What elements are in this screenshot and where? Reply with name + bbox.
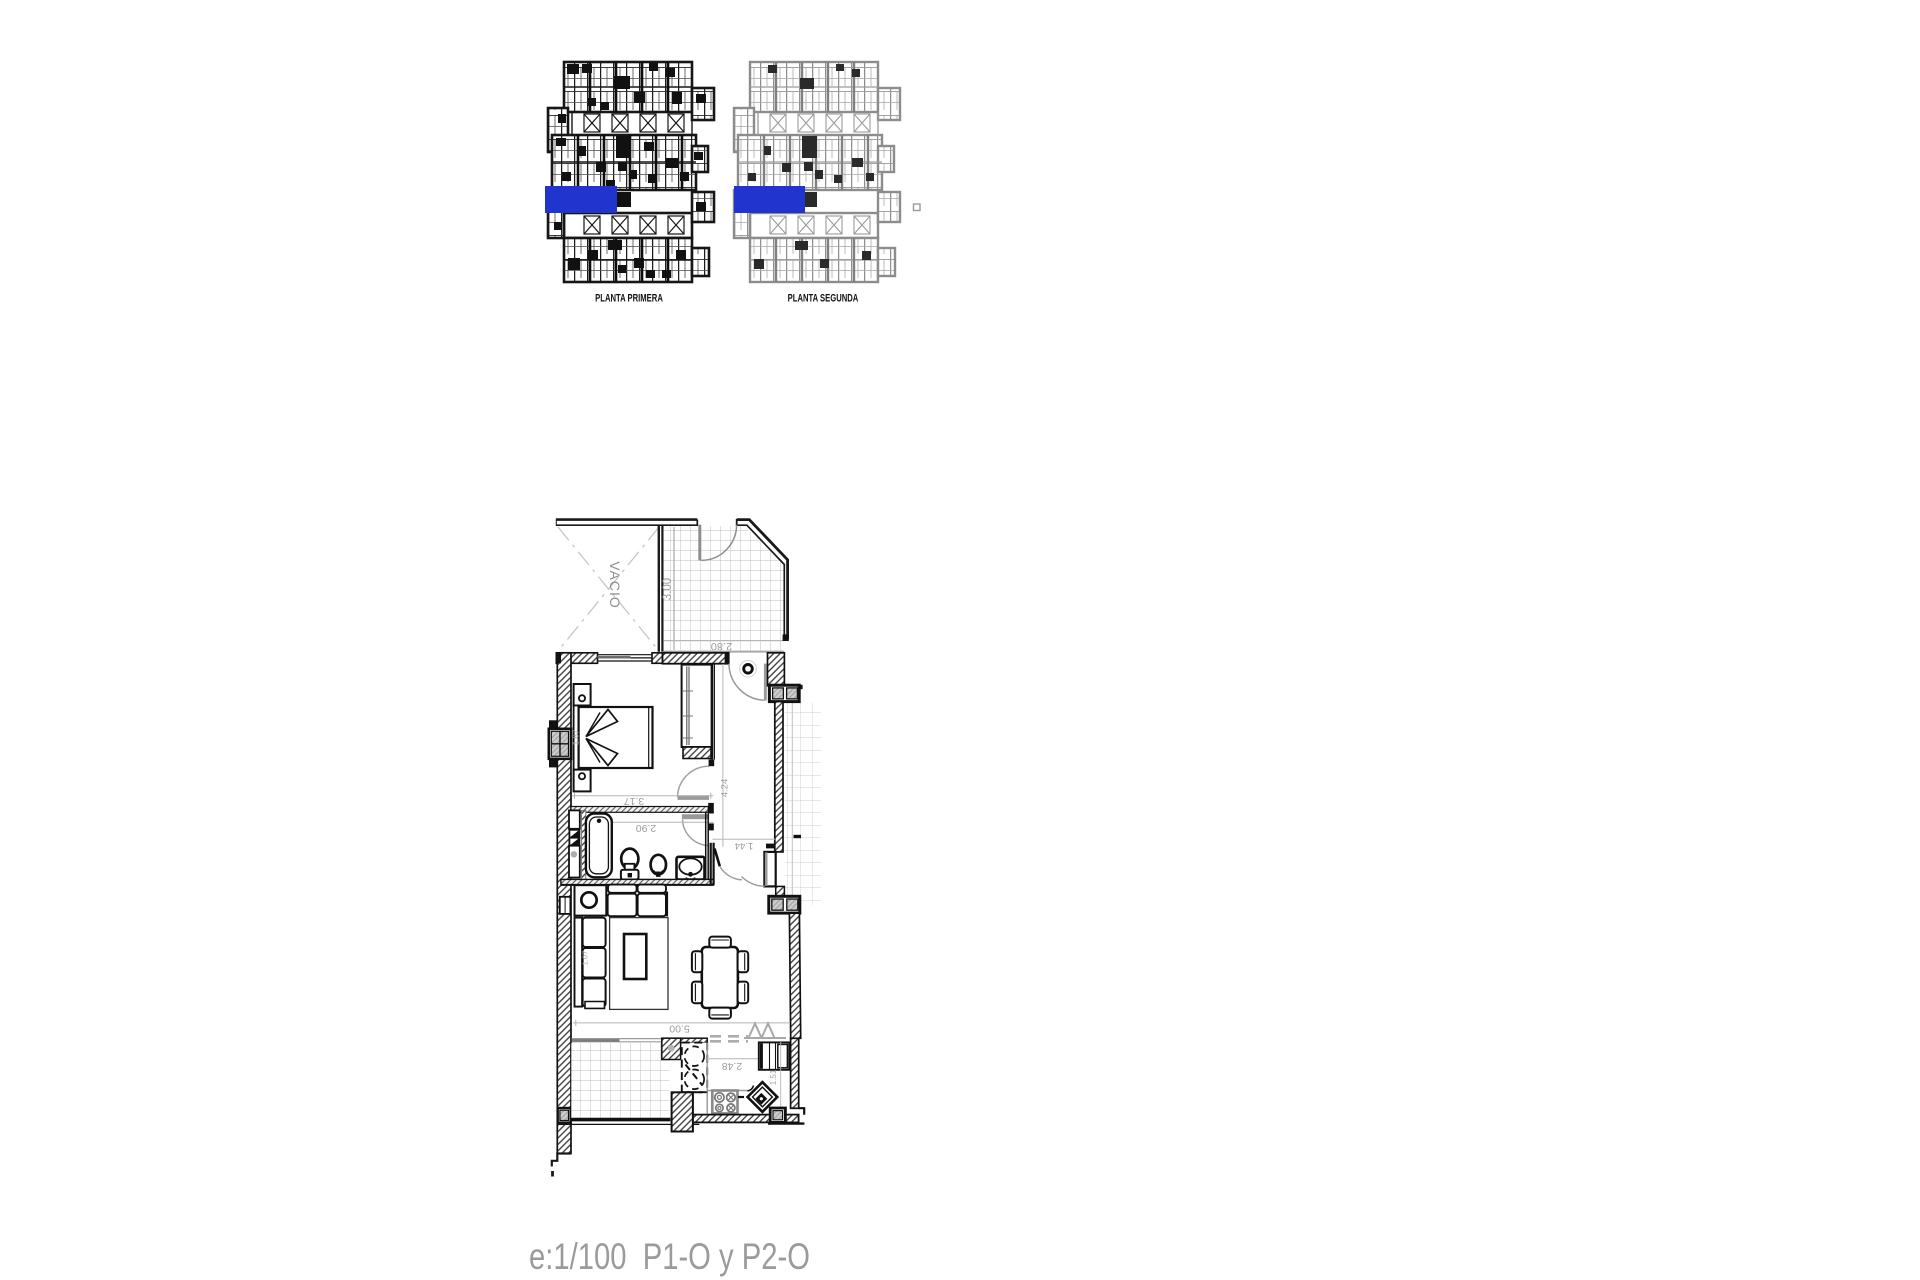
svg-text:2.48: 2.48 (722, 1060, 743, 1072)
svg-text:4.24: 4.24 (720, 779, 731, 798)
svg-text:3.17: 3.17 (624, 795, 645, 807)
svg-text:3.00: 3.00 (662, 578, 674, 600)
svg-text:e:1/100 P1-O y P2-O: e:1/100 P1-O y P2-O (529, 1237, 810, 1278)
svg-text:PLANTA PRIMERA: PLANTA PRIMERA (595, 292, 663, 304)
svg-text:1.07: 1.07 (581, 951, 590, 966)
svg-text:PLANTA SEGUNDA: PLANTA SEGUNDA (788, 292, 859, 304)
svg-text:1.51: 1.51 (769, 1069, 778, 1085)
svg-text:2.90: 2.90 (636, 822, 657, 834)
svg-text:1.67: 1.67 (572, 729, 581, 745)
svg-text:5.00: 5.00 (669, 1022, 690, 1034)
svg-text:1.44: 1.44 (735, 840, 754, 851)
svg-text:VACIO: VACIO (607, 561, 623, 609)
svg-text:2.80: 2.80 (711, 640, 732, 652)
